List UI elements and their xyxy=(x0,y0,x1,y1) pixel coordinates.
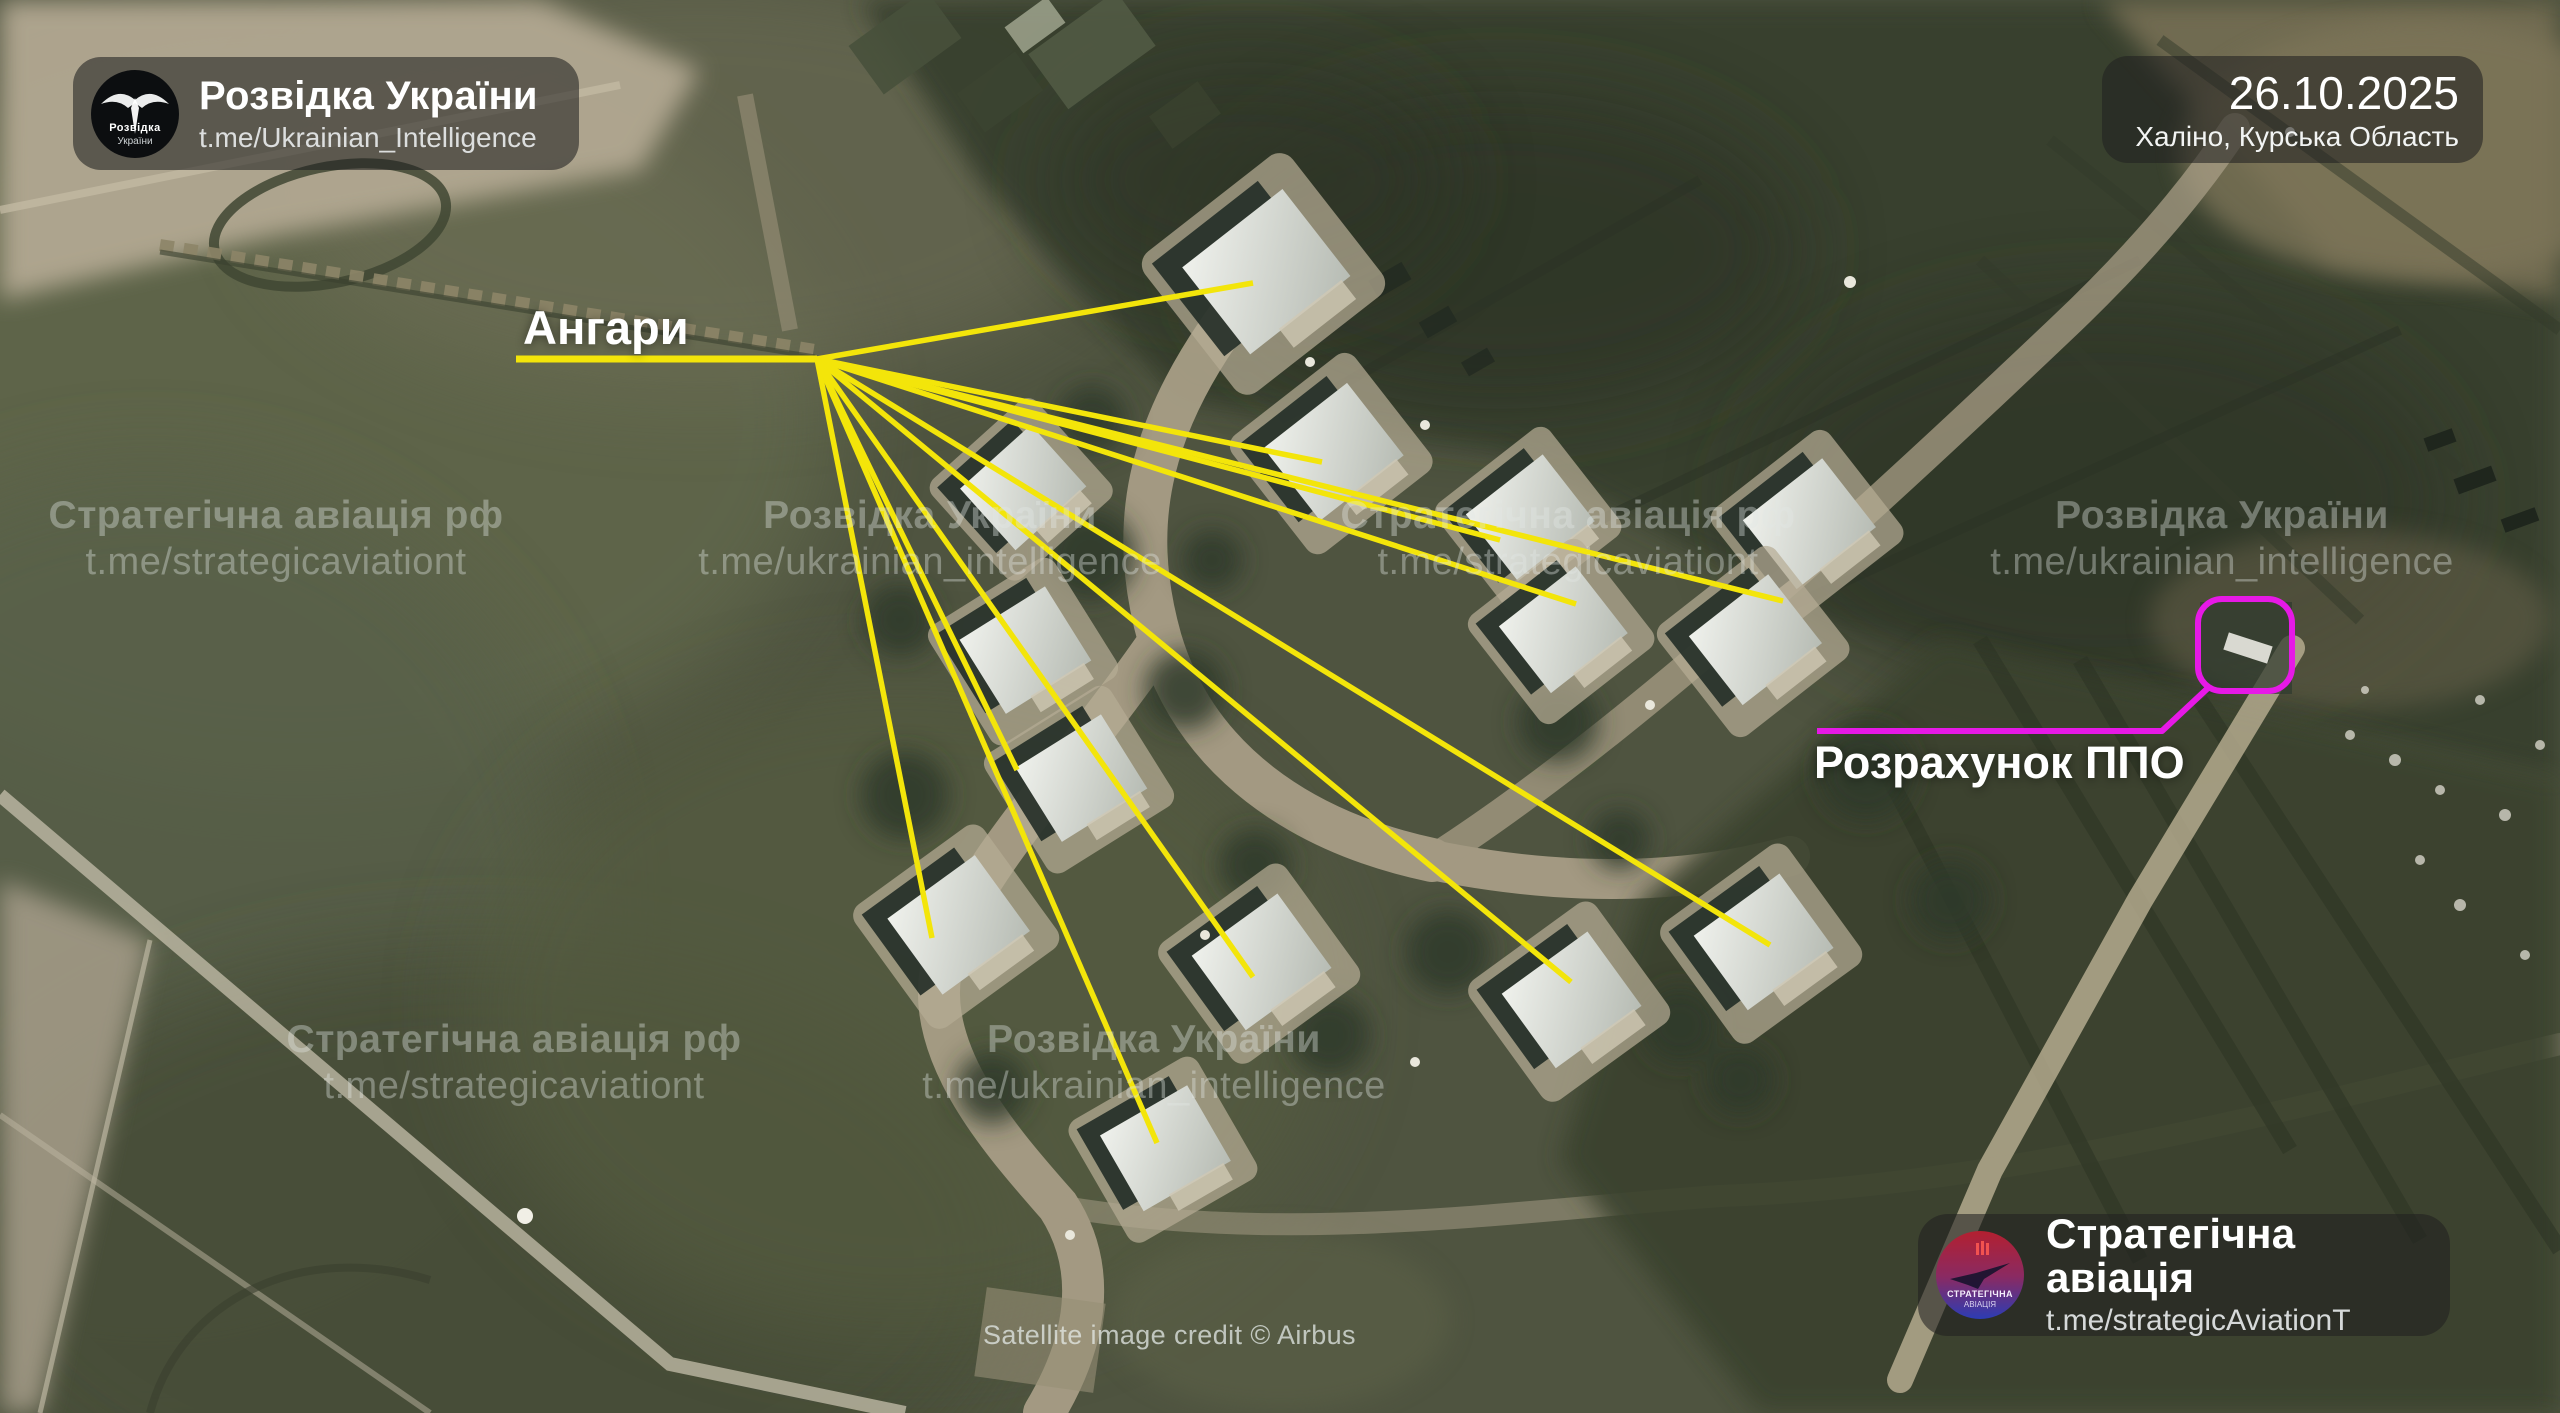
logo-text: України xyxy=(91,136,179,147)
channel-title: Стратегічна авіація xyxy=(2046,1212,2450,1300)
date-location-badge: 26.10.2025 Халіно, Курська Область xyxy=(2102,56,2483,163)
badge-text: Стратегічна авіація t.me/strategicAviati… xyxy=(2046,1212,2450,1338)
logo-text: СТРАТЕГІЧНА xyxy=(1936,1289,2024,1299)
watermark: Стратегічна авіація рф t.me/strategicavi… xyxy=(49,492,504,586)
watermark-line1: Стратегічна авіація рф xyxy=(287,1016,742,1063)
channel-title: Розвідка України xyxy=(199,74,538,118)
watermark-line1: Розвідка України xyxy=(1990,492,2453,539)
hangars-label: Ангари xyxy=(523,300,689,355)
watermark: Стратегічна авіація рф t.me/strategicavi… xyxy=(1341,492,1796,586)
logo-text: АВІАЦІЯ xyxy=(1936,1300,2024,1309)
air-defense-label: Розрахунок ППО xyxy=(1814,737,2185,789)
watermark-line1: Розвідка України xyxy=(698,492,1161,539)
channel-link: t.me/Ukrainian_Intelligence xyxy=(199,122,538,154)
intelligence-logo: Розвідка України xyxy=(91,70,179,158)
intelligence-channel-badge: Розвідка України Розвідка України t.me/U… xyxy=(73,57,579,170)
watermark-line1: Стратегічна авіація рф xyxy=(49,492,504,539)
capture-date: 26.10.2025 xyxy=(2102,68,2459,118)
watermark: Розвідка України t.me/ukrainian_intellig… xyxy=(1990,492,2453,586)
badge-text: Розвідка України t.me/Ukrainian_Intellig… xyxy=(199,74,538,154)
watermark-line2: t.me/ukrainian_intelligence xyxy=(698,539,1161,586)
capture-location: Халіно, Курська Область xyxy=(2102,121,2459,153)
aviation-logo: СТРАТЕГІЧНА АВІАЦІЯ xyxy=(1936,1231,2024,1319)
satellite-terrain-layer: .pad{fill:#b5ac94;opacity:.72} .hsh{fill… xyxy=(0,0,2560,1413)
watermark-line1: Стратегічна авіація рф xyxy=(1341,492,1796,539)
channel-link: t.me/strategicAviationT xyxy=(2046,1304,2450,1338)
watermark: Розвідка України t.me/ukrainian_intellig… xyxy=(698,492,1161,586)
image-credit: Satellite image credit © Airbus xyxy=(983,1320,1356,1351)
watermark-line2: t.me/strategicaviationt xyxy=(49,539,504,586)
annotated-satellite-image: .pad{fill:#b5ac94;opacity:.72} .hsh{fill… xyxy=(0,0,2560,1413)
logo-text: Розвідка xyxy=(91,122,179,134)
watermark-line2: t.me/strategicaviationt xyxy=(1341,539,1796,586)
watermark-line1: Розвідка України xyxy=(922,1016,1385,1063)
aviation-channel-badge: СТРАТЕГІЧНА АВІАЦІЯ Стратегічна авіація … xyxy=(1918,1214,2450,1336)
watermark-line2: t.me/ukrainian_intelligence xyxy=(1990,539,2453,586)
watermark: Розвідка України t.me/ukrainian_intellig… xyxy=(922,1016,1385,1110)
watermark-line2: t.me/ukrainian_intelligence xyxy=(922,1063,1385,1110)
watermark: Стратегічна авіація рф t.me/strategicavi… xyxy=(287,1016,742,1110)
watermark-line2: t.me/strategicaviationt xyxy=(287,1063,742,1110)
